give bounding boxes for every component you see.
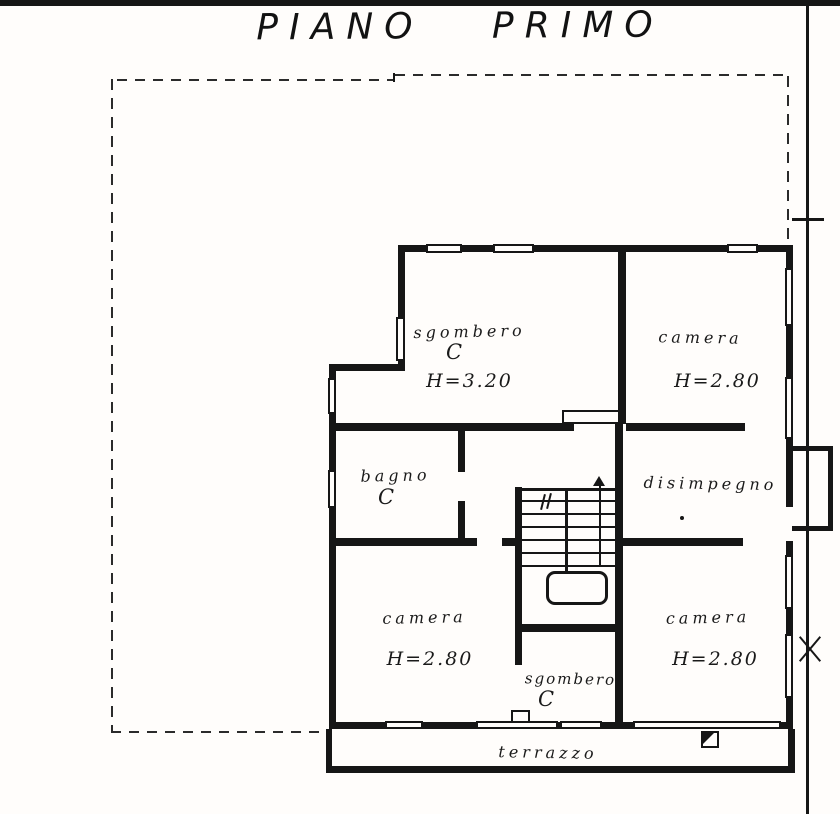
window-right-3 (785, 555, 793, 609)
window-right-2 (785, 377, 793, 439)
room-label-sgombero-top: sgombero (402, 321, 537, 343)
stair-tread (522, 500, 615, 502)
room-label-camera-top-right: camera (638, 327, 763, 348)
window-right-1 (785, 268, 793, 326)
wall-divider-sgombero-camera (618, 252, 626, 424)
room-label-terrazzo: terrazzo (478, 742, 618, 763)
height-label-camera-top-right: H=2.80 (655, 370, 780, 392)
window-bagno (328, 470, 336, 508)
height-label-camera-bottom-left: H=2.80 (360, 648, 500, 670)
stair-up-arrow-icon (593, 476, 605, 486)
stair-tread (522, 513, 615, 515)
frame-x-mark (796, 635, 824, 663)
door-threshold-sgombero (562, 410, 620, 424)
room-label-disimpegno: disimpegno (628, 473, 793, 495)
room-label-camera-bottom-right: camera (638, 607, 778, 629)
flourish-sgombero-top: C (446, 340, 462, 364)
floor-plan-page: PIANO PRIMO (0, 0, 840, 814)
terrace-wall-bottom (326, 766, 795, 773)
room-label-camera-bottom-left: camera (352, 606, 497, 628)
stair-center-stringer (565, 488, 568, 574)
window-left-bay (328, 378, 336, 414)
boundary-dashed-top-right (395, 74, 788, 76)
sheet-frame-top (0, 0, 840, 6)
stairwell-railing (546, 571, 608, 605)
stair-tread (522, 552, 615, 554)
stair-tread (522, 565, 615, 567)
boundary-dashed-right (787, 76, 789, 248)
wall-bagno-bottom (336, 538, 477, 546)
left-bay-wall-top (329, 364, 405, 371)
flourish-bagno: C (378, 485, 394, 509)
wall-camera-tr-bottom (626, 423, 745, 431)
window-bottom-1 (385, 721, 423, 729)
window-top-1 (426, 244, 462, 253)
wall-outer-left-main (329, 423, 336, 729)
wall-stairs-left (515, 487, 522, 665)
window-bottom-2 (476, 721, 558, 729)
window-bottom-4 (633, 721, 781, 729)
window-top-2 (493, 244, 534, 253)
stair-tread (522, 539, 615, 541)
boundary-dashed-top-left (117, 79, 393, 81)
boundary-dashed-bottom (111, 731, 330, 733)
stair-tread (522, 488, 615, 491)
sheet-frame-right (806, 6, 809, 814)
room-label-bagno: bagno (348, 465, 443, 486)
plan-dot-mark (680, 516, 684, 520)
wall-stairwell-bottom (521, 624, 622, 632)
stair-tread (522, 526, 615, 528)
height-label-camera-bottom-right: H=2.80 (648, 648, 783, 670)
page-title: PIANO PRIMO (110, 4, 810, 50)
wall-disimpegno-camera-br (623, 538, 743, 546)
wall-bagno-right-upper (458, 431, 465, 472)
stair-direction-line (599, 484, 601, 566)
boundary-dashed-left (111, 79, 113, 733)
stair-cut-mark (540, 494, 546, 510)
right-balcony (792, 446, 833, 531)
height-label-sgombero-top: H=3.20 (402, 370, 537, 392)
terrace-hatch-symbol (701, 731, 719, 748)
window-top-3 (727, 244, 758, 253)
window-bottom-3 (560, 721, 602, 729)
wall-mid-upper-left (329, 423, 574, 431)
window-right-4 (785, 634, 793, 698)
frame-tick-mark (792, 218, 824, 221)
flourish-sgombero-bottom: C (538, 687, 554, 711)
room-label-sgombero-bottom: sgombero (518, 669, 623, 689)
